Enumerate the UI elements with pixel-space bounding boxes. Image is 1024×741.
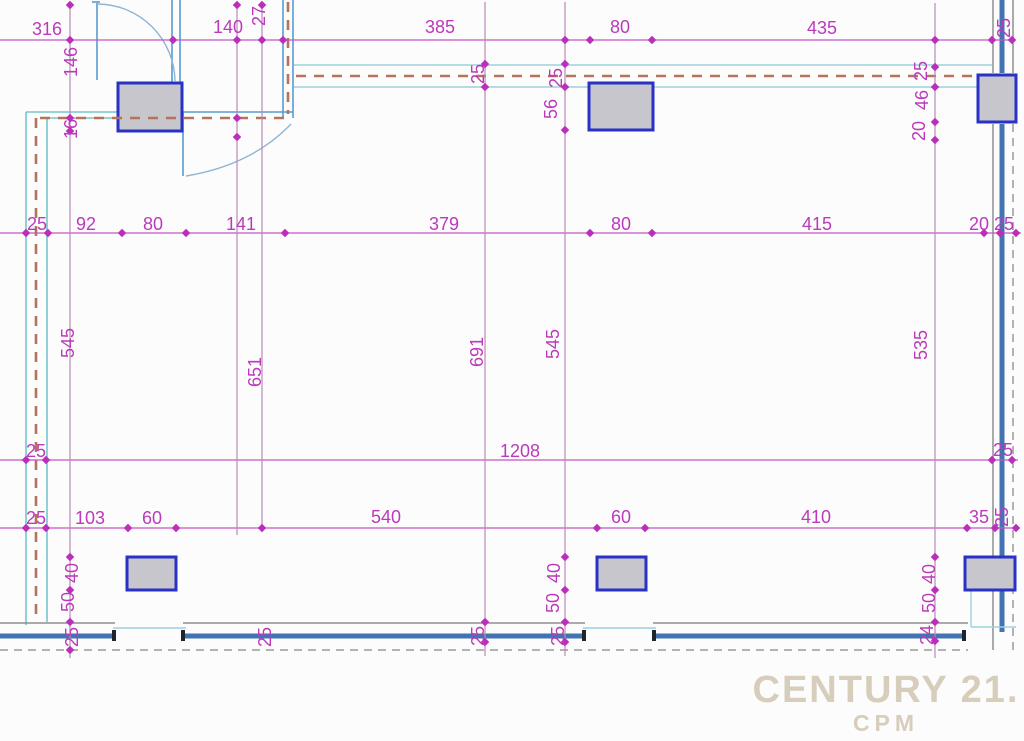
dimension-tick	[481, 83, 489, 91]
dimension-tick	[1008, 36, 1016, 44]
dimension-tick	[66, 127, 74, 135]
dimension-tick	[172, 524, 180, 532]
dimension-tick	[991, 524, 999, 532]
dimension-tick	[931, 553, 939, 561]
dimension-tick	[988, 456, 996, 464]
dimension-tick	[931, 136, 939, 144]
dimension-tick	[233, 1, 241, 9]
dimension-tick	[561, 60, 569, 68]
dimension-tick	[258, 36, 266, 44]
dimension-tick	[586, 36, 594, 44]
dimension-tick	[42, 456, 50, 464]
dimension-tick	[561, 36, 569, 44]
dimension-tick	[988, 36, 996, 44]
dimension-tick	[124, 524, 132, 532]
dimension-tick	[931, 83, 939, 91]
dimension-tick	[42, 524, 50, 532]
column	[965, 557, 1015, 590]
dimension-tick	[931, 586, 939, 594]
dimension-tick	[44, 229, 52, 237]
dimension-tick	[22, 524, 30, 532]
dimension-tick	[931, 63, 939, 71]
columns	[118, 75, 1016, 590]
dimension-tick	[481, 638, 489, 646]
dimension-tick	[1012, 229, 1020, 237]
dimension-tick	[980, 229, 988, 237]
dimension-tick	[66, 586, 74, 594]
dimension-tick	[931, 36, 939, 44]
dimension-tick	[66, 646, 74, 654]
dimension-tick	[561, 618, 569, 626]
dimension-tick	[561, 126, 569, 134]
dimension-tick	[118, 229, 126, 237]
entry-door-arc	[97, 4, 175, 81]
dimension-tick	[258, 1, 266, 9]
bottom-wall	[0, 590, 1016, 650]
dimension-tick	[931, 618, 939, 626]
left-wall	[26, 112, 118, 625]
dimension-tick	[593, 524, 601, 532]
dimension-tick	[561, 553, 569, 561]
dimension-tick	[66, 1, 74, 9]
dimension-tick	[66, 114, 74, 122]
column	[589, 83, 653, 130]
dimension-tick	[1008, 456, 1016, 464]
dimension-tick	[22, 456, 30, 464]
dimension-tick	[233, 133, 241, 141]
dimension-tick	[963, 524, 971, 532]
dimension-tick	[258, 524, 266, 532]
dimension-tick	[233, 36, 241, 44]
dimension-tick	[561, 83, 569, 91]
dimension-tick	[931, 118, 939, 126]
dimension-tick	[66, 36, 74, 44]
dimension-tick	[279, 36, 287, 44]
floorplan-canvas: 3161402738580435252592801413798041520252…	[0, 0, 1024, 741]
dimension-tick	[561, 586, 569, 594]
dimension-tick	[586, 229, 594, 237]
dimension-tick	[182, 229, 190, 237]
double-door-arc	[186, 124, 291, 176]
dimension-tick	[648, 36, 656, 44]
column	[118, 83, 182, 131]
dimension-tick	[641, 524, 649, 532]
dimension-tick	[66, 618, 74, 626]
dimension-tick	[481, 618, 489, 626]
dimension-tick	[66, 553, 74, 561]
column	[597, 557, 646, 590]
dimension-tick	[169, 36, 177, 44]
dimension-tick	[22, 229, 30, 237]
dimension-tick	[648, 229, 656, 237]
column	[978, 75, 1016, 122]
dimension-tick	[481, 60, 489, 68]
dimension-tick	[561, 638, 569, 646]
dimension-tick	[233, 114, 241, 122]
floorplan-drawing	[0, 0, 1024, 741]
column	[127, 557, 176, 590]
dimension-tick	[281, 229, 289, 237]
